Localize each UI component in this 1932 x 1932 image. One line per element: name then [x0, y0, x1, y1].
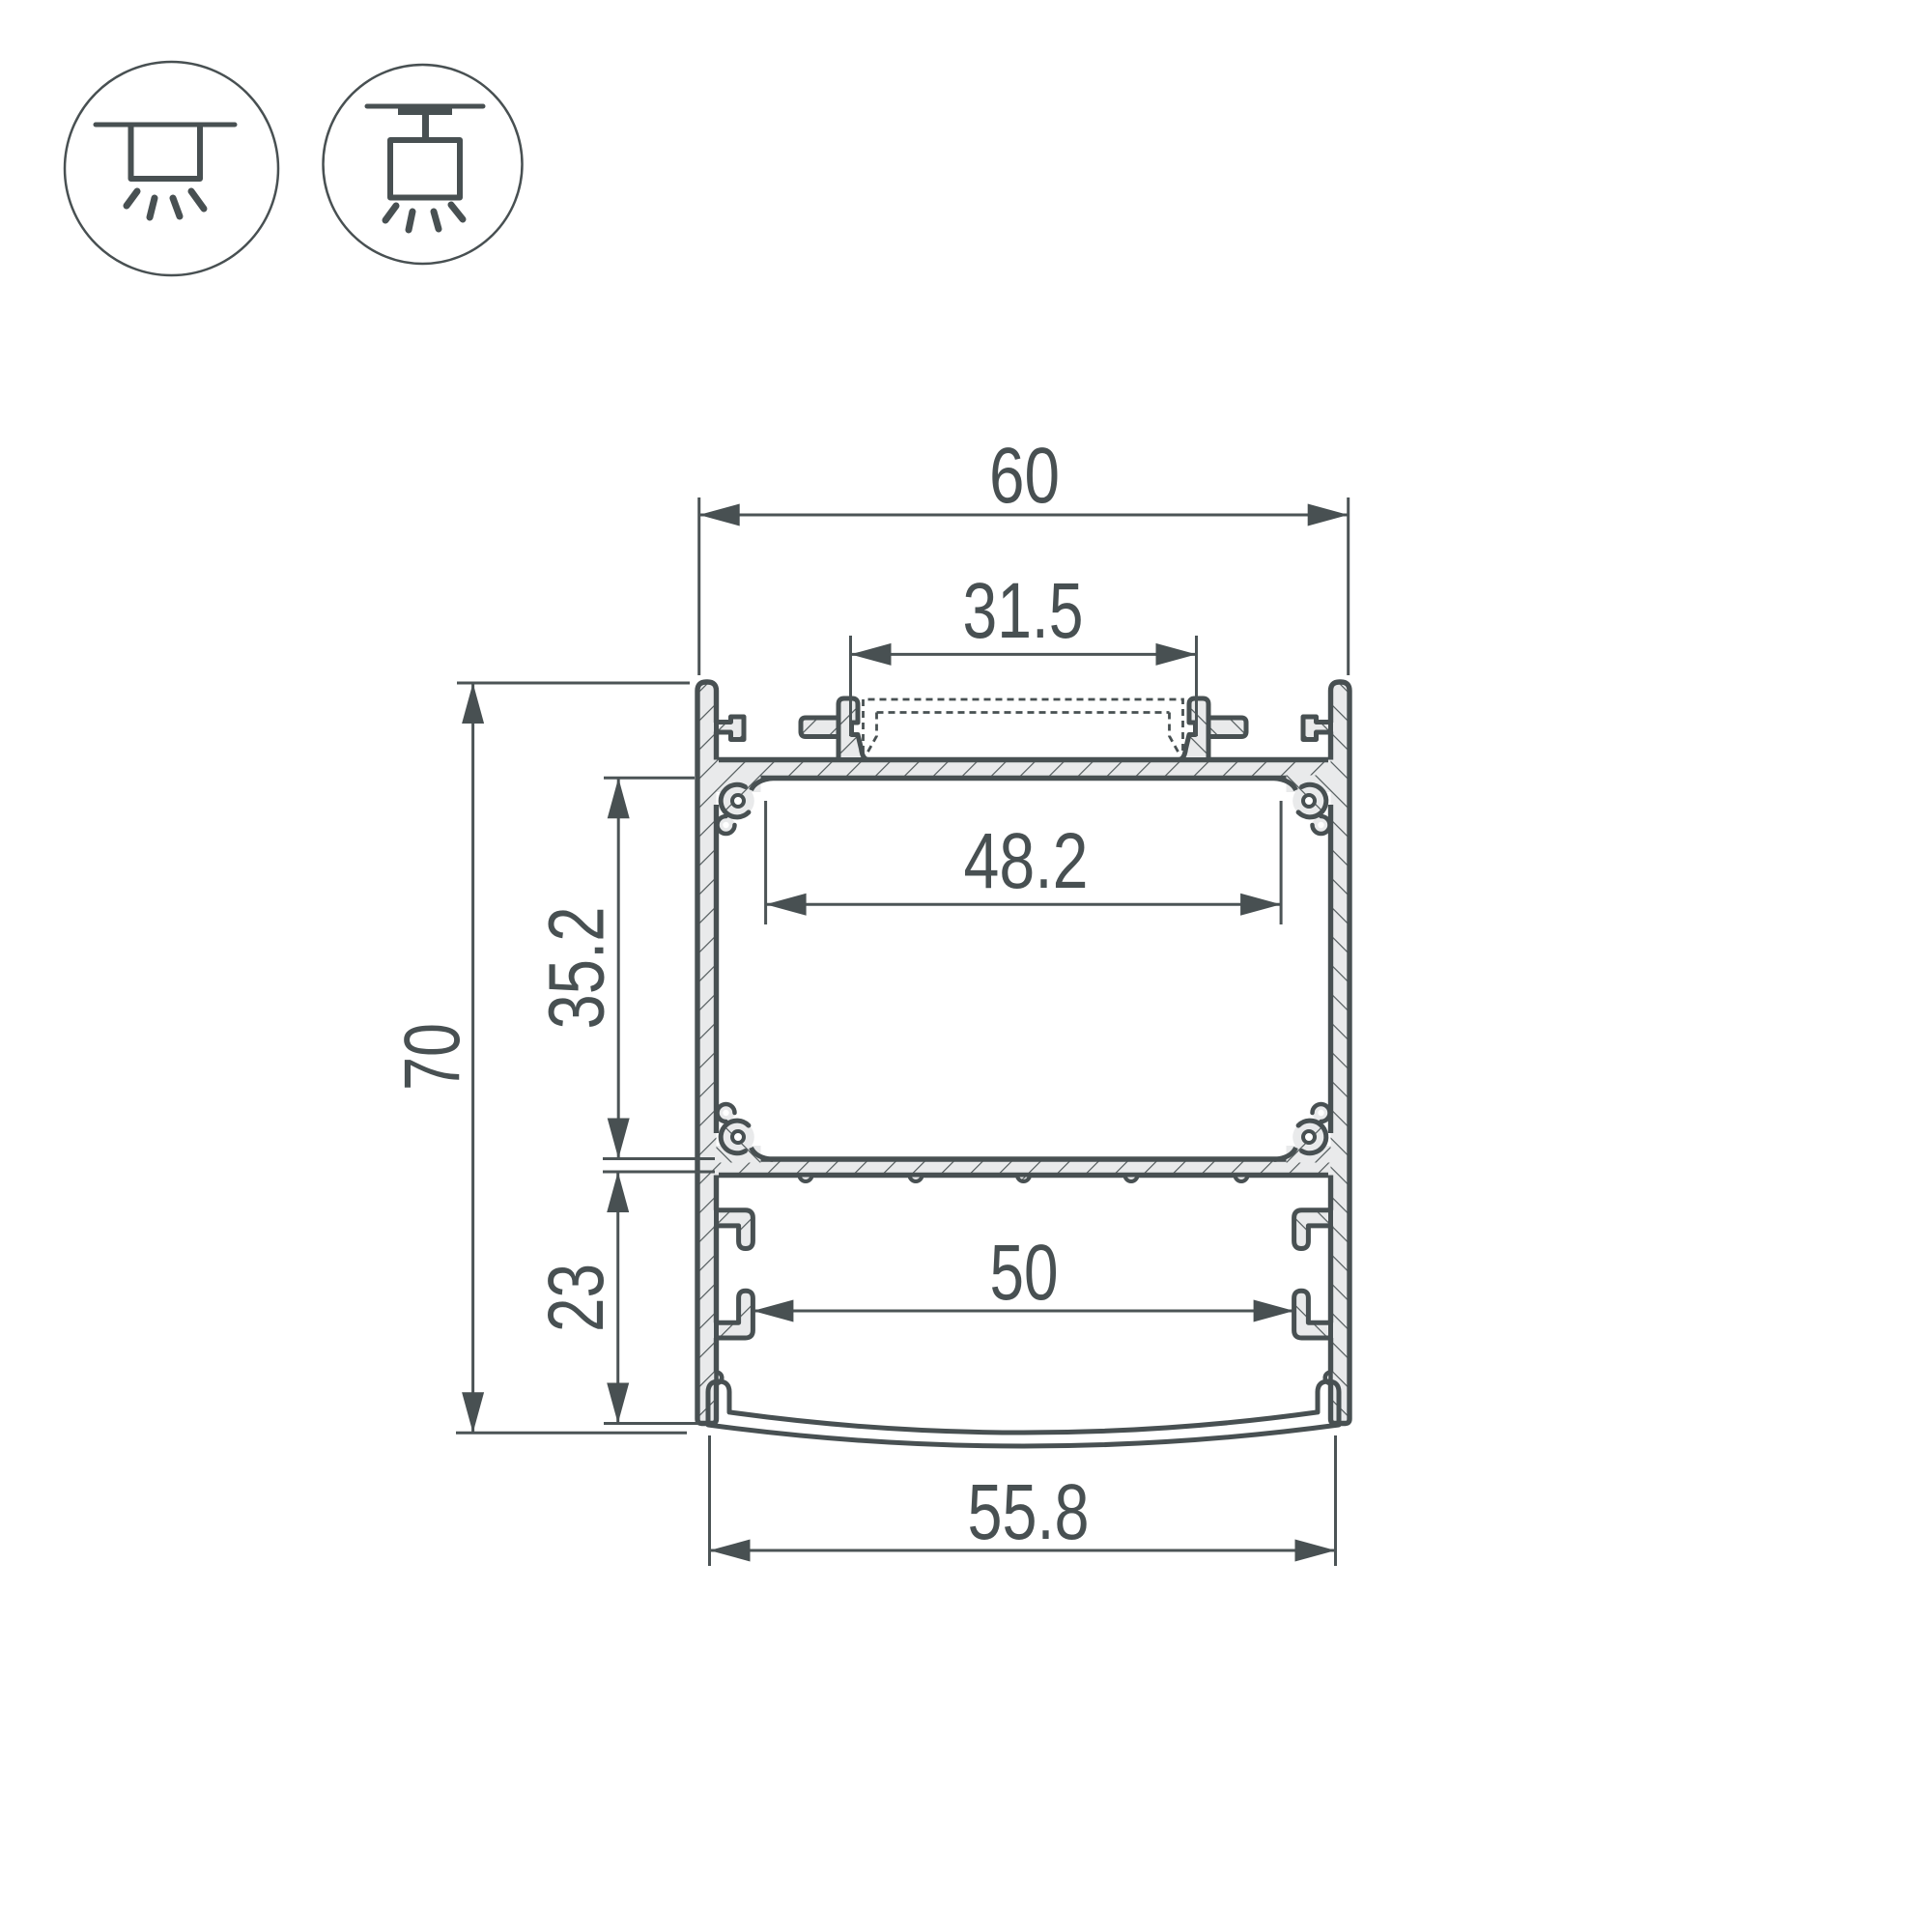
svg-text:60: 60 — [989, 432, 1060, 520]
svg-text:31.5: 31.5 — [963, 567, 1084, 655]
svg-text:23: 23 — [532, 1264, 620, 1332]
svg-text:48.2: 48.2 — [964, 817, 1089, 905]
svg-text:50: 50 — [990, 1229, 1059, 1317]
svg-text:35.2: 35.2 — [533, 907, 621, 1030]
svg-text:70: 70 — [388, 1023, 476, 1091]
svg-text:55.8: 55.8 — [968, 1468, 1090, 1556]
